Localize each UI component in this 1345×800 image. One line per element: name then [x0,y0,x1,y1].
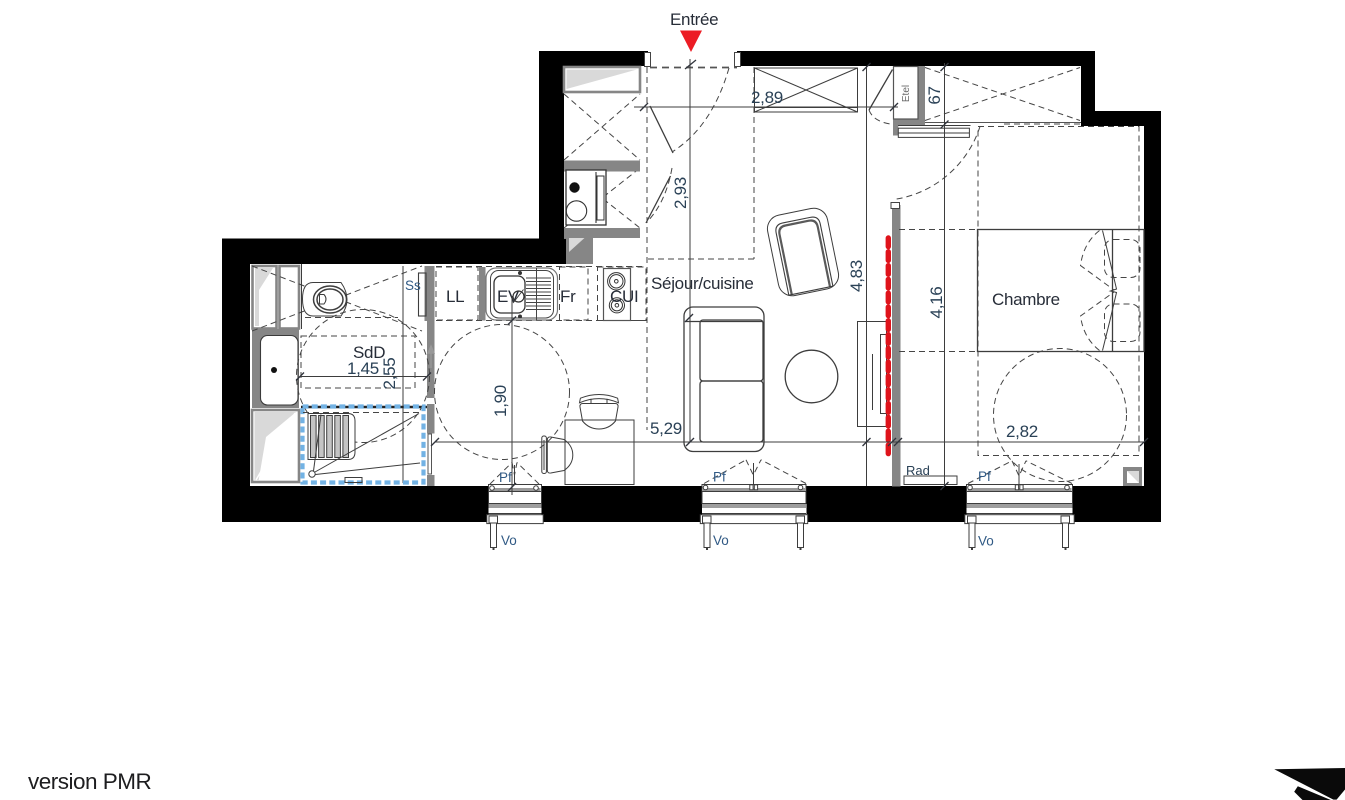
svg-text:Séjour/cuisine: Séjour/cuisine [651,274,754,293]
svg-text:2,89: 2,89 [751,88,783,107]
svg-text:2,55: 2,55 [380,358,399,390]
svg-text:1,45: 1,45 [347,359,379,378]
svg-text:4,16: 4,16 [927,287,946,319]
svg-text:Vo: Vo [978,534,994,549]
svg-text:Ss: Ss [405,278,421,293]
svg-text:5,29: 5,29 [650,419,682,438]
svg-text:LL: LL [446,287,464,306]
svg-text:version PMR: version PMR [28,769,152,794]
svg-text:CUI: CUI [610,287,638,306]
svg-text:2,82: 2,82 [1006,422,1038,441]
svg-text:Vo: Vo [713,533,729,548]
svg-text:Pf: Pf [978,469,991,484]
svg-text:2,93: 2,93 [671,177,690,209]
svg-text:EV: EV [497,287,520,306]
svg-text:4,83: 4,83 [847,260,866,292]
svg-text:Fr: Fr [560,287,576,306]
svg-text:Chambre: Chambre [992,290,1060,309]
svg-text:1,90: 1,90 [491,385,510,417]
svg-text:67: 67 [925,86,944,104]
svg-text:Vo: Vo [501,533,517,548]
svg-text:Pf: Pf [499,470,512,485]
svg-text:Etel: Etel [901,85,912,102]
svg-text:Pf: Pf [713,470,726,485]
svg-text:Entrée: Entrée [670,10,718,29]
